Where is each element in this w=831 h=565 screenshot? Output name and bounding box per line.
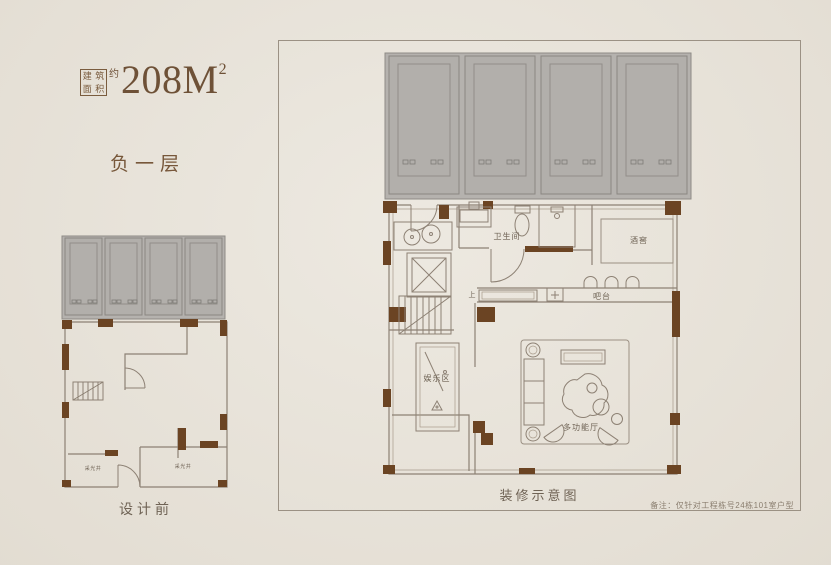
parking-panel [145,238,182,315]
wall-segments [62,319,227,487]
parking-panel [465,56,535,194]
area-title: 建 筑 面 积 约 208M 2 [80,60,227,100]
renovation-drawing: 上 卫生间 酒窖 吧台 [279,41,800,510]
parking-panel [185,238,222,315]
entry-door-arc [411,205,524,282]
disclaimer-note: 备注：仅针对工程栋号24栋101室户型 [650,500,794,511]
area-superscript: 2 [219,61,227,79]
area-prefix-char: 面 [81,83,94,96]
door-arc [118,368,145,487]
lightwell-parking-block [385,53,691,199]
outline-walls [65,322,227,487]
multi-function-hall-furniture [521,340,629,449]
before-design-plan: 采光井 采光井 [60,232,232,490]
stairs [73,382,103,400]
approx-label: 约 [109,65,119,80]
parking-panel [105,238,142,315]
floor-label: 负一层 [60,149,235,176]
lightwell-label: 采光井 [175,463,192,470]
area-value: 208M [121,60,219,100]
before-design-drawing: 采光井 采光井 [60,232,232,490]
area-prefix-char: 积 [94,83,107,96]
multi-function-hall-label: 多功能厅 [563,422,599,432]
parking-panel [65,238,102,315]
bar-label: 吧台 [593,291,611,301]
parking-panel [617,56,687,194]
area-prefix-box: 建 筑 面 积 [80,69,107,96]
entertainment-label: 娱乐区 [424,373,451,383]
wine-cellar-label: 酒窖 [630,235,648,245]
renovation-panel: 上 卫生间 酒窖 吧台 [278,40,801,511]
elevator [407,253,451,297]
floorplan-sheet: 建 筑 面 积 约 208M 2 负一层 [0,0,831,565]
billiard-table [416,343,459,431]
before-design-caption: 设计前 [60,499,232,519]
bathroom-label: 卫生间 [494,231,521,241]
lightwell-label: 采光井 [85,465,102,472]
vanity-sink [394,222,452,250]
lightwell-parking-block [62,236,225,319]
parking-panel [541,56,611,194]
stairs [399,296,451,334]
parking-panel [389,56,459,194]
stairs-up-label: 上 [469,290,476,299]
area-prefix-char: 筑 [94,70,107,83]
area-prefix-char: 建 [81,70,94,83]
